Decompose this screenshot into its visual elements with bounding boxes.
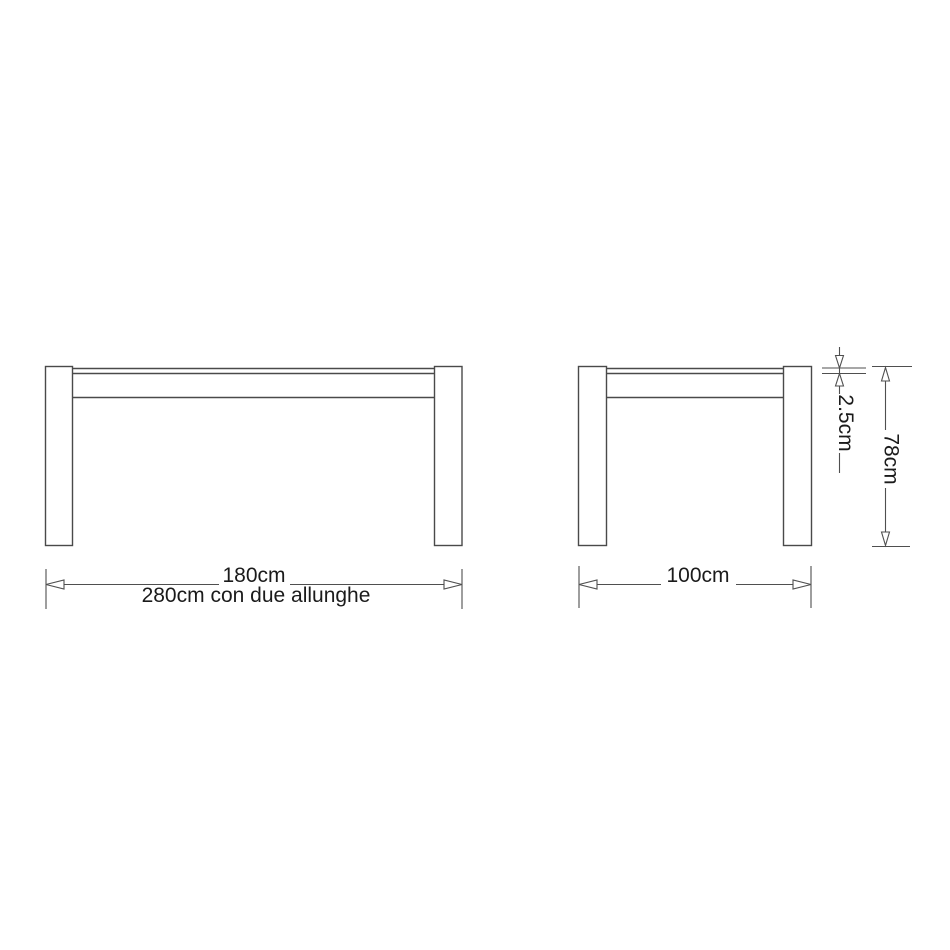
front-dim-arrow-left	[46, 580, 64, 589]
thickness-arrow-up	[836, 374, 844, 387]
top-thickness-dimension: 2.5cm	[822, 347, 866, 473]
front-width-extended-label: 280cm con due allunghe	[142, 584, 371, 607]
table-front-view: 180cm 280cm con due allunghe	[46, 367, 463, 610]
front-width-dimension: 180cm 280cm con due allunghe	[46, 564, 462, 609]
height-arrow-down	[882, 532, 890, 546]
height-dimension: 78cm	[872, 367, 912, 547]
front-right-leg	[435, 367, 463, 546]
front-left-leg	[46, 367, 73, 546]
table-technical-drawing: 180cm 280cm con due allunghe 100cm	[0, 0, 950, 950]
side-depth-label: 100cm	[666, 564, 729, 587]
diagram-canvas: 180cm 280cm con due allunghe 100cm	[0, 0, 950, 950]
height-arrow-up	[882, 368, 890, 382]
front-dim-arrow-right	[444, 580, 462, 589]
height-label: 78cm	[880, 433, 903, 484]
side-left-leg	[579, 367, 607, 546]
side-dim-arrow-right	[793, 580, 811, 589]
top-thickness-label: 2.5cm	[834, 394, 857, 451]
side-depth-dimension: 100cm	[579, 564, 811, 608]
thickness-arrow-down	[836, 356, 844, 369]
side-right-leg	[784, 367, 812, 546]
side-dim-arrow-left	[579, 580, 597, 589]
table-side-view: 100cm 2.5cm 78cm	[579, 347, 913, 608]
